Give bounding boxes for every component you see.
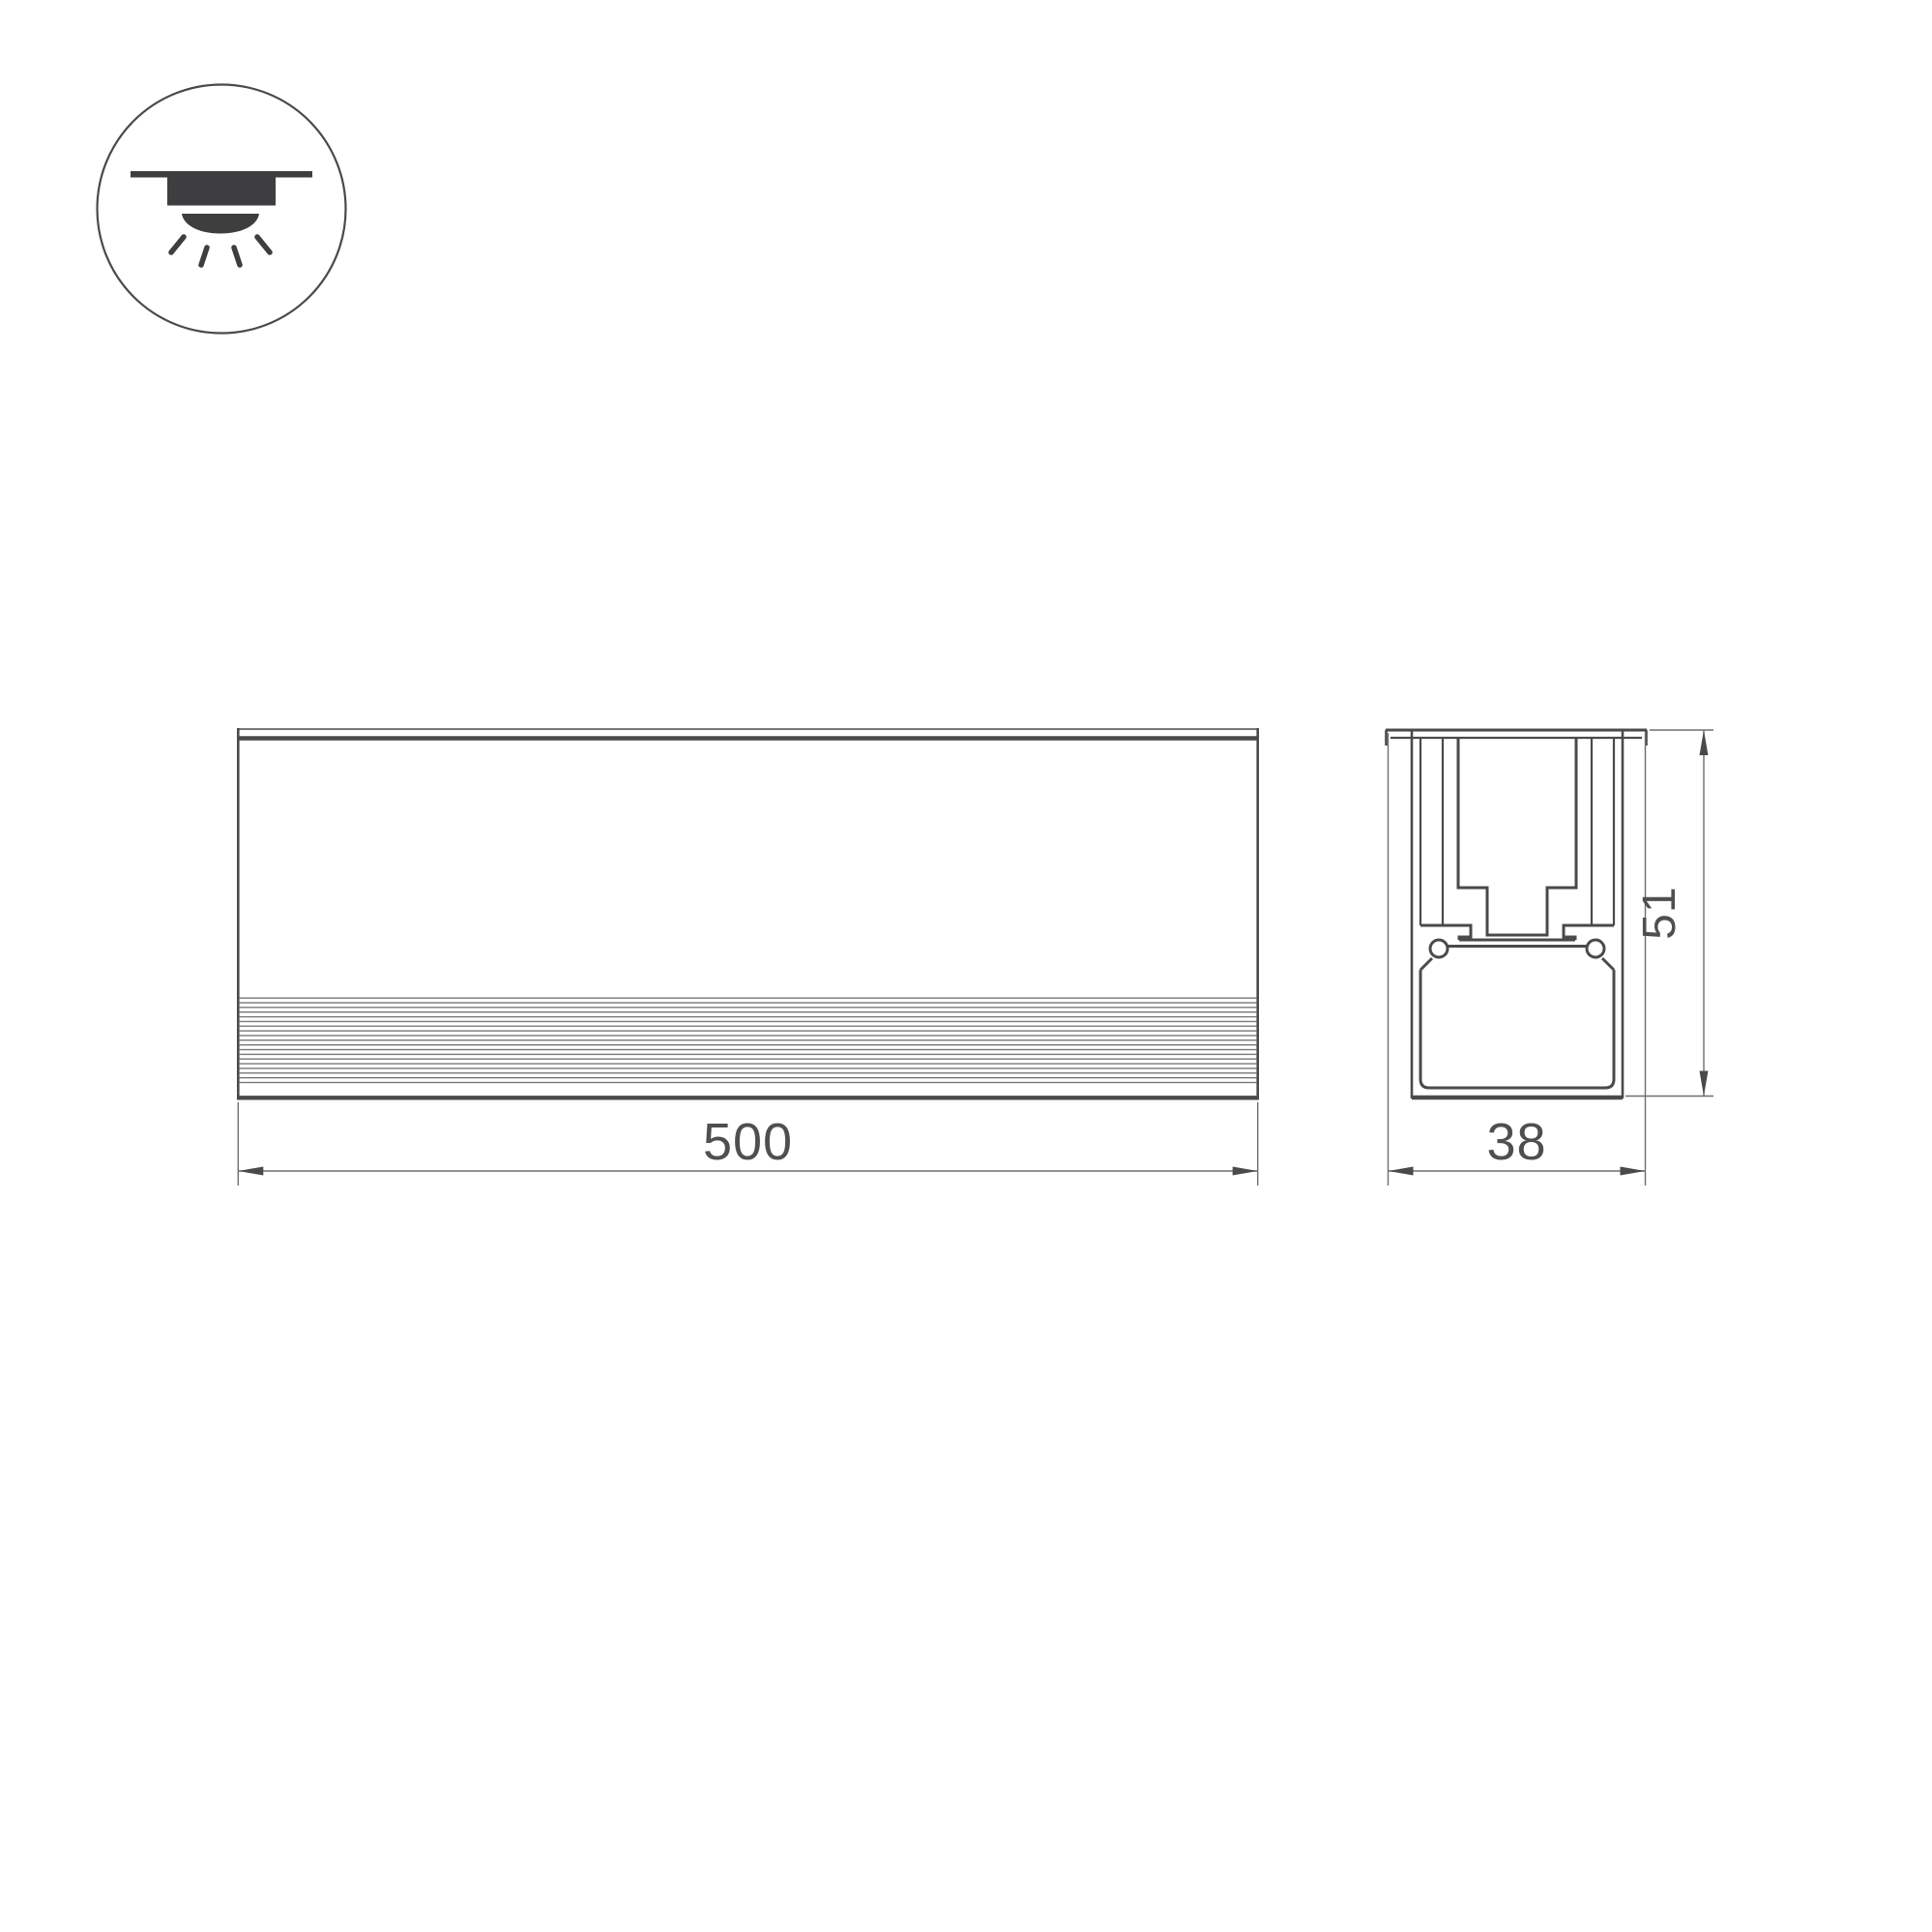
arrowhead-right	[1621, 1167, 1646, 1176]
arrowhead-top	[1700, 730, 1709, 755]
left-hook-notch	[1430, 940, 1448, 957]
mount-type-icon	[98, 85, 346, 334]
section-height-dimension: 51	[1625, 730, 1713, 1097]
front-length-label: 500	[703, 1113, 793, 1171]
section-height-label: 51	[1634, 886, 1685, 939]
arrowhead-left	[1389, 1167, 1414, 1176]
light-ray	[234, 248, 240, 265]
technical-drawing: 500	[0, 0, 1932, 1932]
right-hook-notch	[1587, 940, 1604, 957]
arrowhead-bottom	[1700, 1071, 1709, 1097]
left-chamfer	[1420, 958, 1432, 970]
arrowhead-right	[1233, 1167, 1258, 1176]
light-ray	[171, 237, 184, 252]
drawing-canvas: 500	[0, 0, 1932, 1932]
central-track-cavity	[1458, 738, 1576, 935]
light-rays	[171, 237, 270, 265]
front-ribbed-diffuser-stripes	[239, 998, 1257, 1086]
icon-circle-border	[98, 85, 346, 334]
left-shelf-hook	[1420, 925, 1471, 940]
front-view	[237, 728, 1259, 1099]
light-dome	[182, 214, 259, 234]
recessed-housing	[167, 177, 276, 206]
light-ray	[257, 237, 270, 252]
right-chamfer	[1602, 958, 1614, 970]
section-width-label: 38	[1486, 1113, 1546, 1171]
ceiling-line	[131, 171, 312, 178]
section-width-dimension: 38	[1389, 733, 1646, 1186]
section-view	[1386, 730, 1647, 1098]
front-length-dimension: 500	[238, 1102, 1257, 1186]
right-shelf-hook	[1564, 925, 1614, 940]
arrowhead-left	[238, 1167, 263, 1176]
lower-diffuser-cavity	[1420, 970, 1614, 1088]
light-ray	[201, 248, 207, 265]
